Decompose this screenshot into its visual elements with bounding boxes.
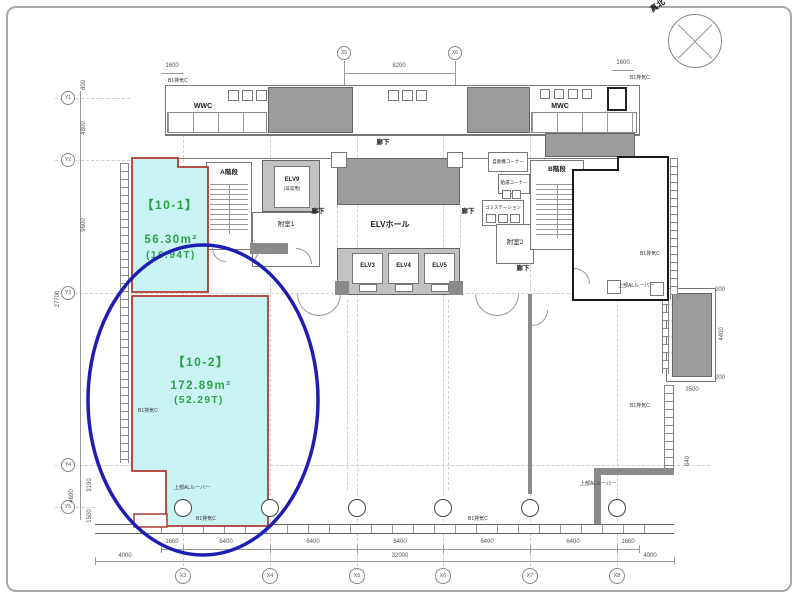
stair-a-label: A階段 [206,169,252,176]
anteroom1-label: 附室1 [266,221,306,228]
corridor-label-southeast: 廊下 [505,265,541,272]
exhaust-note: B1排気C [138,407,158,414]
anteroom2-label: 附室2 [496,239,534,246]
round-column [261,499,279,517]
wwc-label: WWC [188,103,218,111]
mwc-label: MWC [545,103,575,111]
unit-10-2-vestibule [134,514,167,527]
elv9-note-label: (非常用) [271,186,313,191]
elv9-label: ELV9 [275,177,309,184]
elv4-label: ELV4 [388,263,419,270]
louver-note: 上部ALルーバー [174,484,210,491]
exhaust-note: B1排気C [630,402,650,409]
round-column [521,499,539,517]
floorplan-page: 真北 1600 X5 X6 8200 1600 Y1 Y2 Y3 Y4 Y5 8… [0,0,800,600]
east-window-mullions [670,158,678,300]
unit-10-1-name: 【10-1】 [130,199,210,212]
louver-note: 上部ALルーバー [580,480,616,487]
unit-10-2-tsubo: (52.29T) [157,395,241,406]
exhaust-note: B1排気C [630,74,650,81]
corridor-label-top: 廊下 [360,139,406,146]
plan-overlay-svg [0,0,800,600]
louver-note: 上部ALルーバー [618,282,654,289]
unit-10-2-area: 172.89m² [159,380,243,393]
elv3-label: ELV3 [352,263,383,270]
unit-10-2-name: 【10-2】 [161,356,241,369]
vending-label: 自販機コーナー [486,159,530,164]
unit-10-1-area: 56.30m² [129,234,213,247]
garbage-label: ゴミステーション [479,205,527,210]
elv5-label: ELV5 [424,263,455,270]
unit-10-1-tsubo: (16.94T) [129,250,213,261]
round-column [608,499,626,517]
corridor-label-west: 廊下 [300,208,336,215]
unit-10-1-region [132,158,208,292]
round-column [434,499,452,517]
round-column [348,499,366,517]
exhaust-note: B1排気C [168,77,188,84]
exhaust-note: B1排気C [468,515,488,522]
round-column [174,499,192,517]
stair-b-label: B階段 [530,166,584,173]
exhaust-note: B1排気C [640,250,660,257]
elv-hall-label: ELVホール [360,221,420,230]
hotwater-label: 給湯コーナー [496,180,532,185]
exhaust-note: B1排気C [196,515,216,522]
